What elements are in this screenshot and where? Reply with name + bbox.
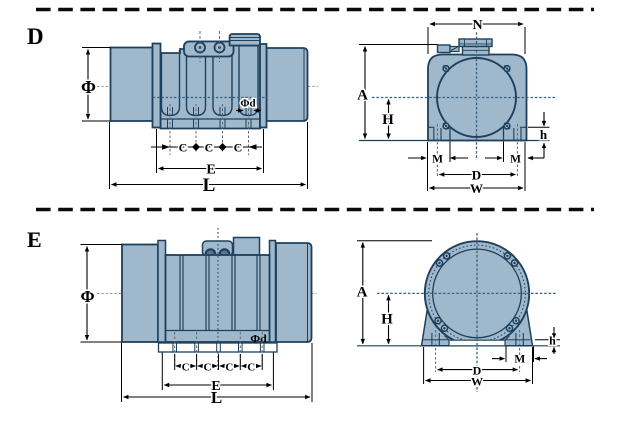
svg-text:A: A (357, 88, 368, 104)
svg-text:H: H (382, 112, 394, 128)
svg-text:C: C (225, 362, 233, 374)
svg-text:H: H (381, 312, 393, 328)
svg-text:h: h (549, 334, 556, 348)
svg-text:N: N (472, 18, 482, 33)
svg-text:E: E (27, 227, 42, 252)
svg-text:M: M (432, 154, 443, 166)
svg-text:C: C (247, 362, 255, 374)
svg-text:M: M (514, 354, 525, 366)
svg-text:C: C (204, 362, 212, 374)
svg-text:h: h (540, 127, 548, 142)
svg-text:Φ: Φ (80, 287, 94, 306)
svg-text:L: L (211, 388, 222, 407)
svg-text:C: C (179, 141, 188, 155)
svg-text:A: A (357, 285, 368, 301)
svg-text:C: C (234, 141, 243, 155)
svg-text:M: M (510, 154, 521, 166)
svg-text:Φd: Φd (240, 98, 255, 110)
svg-text:L: L (203, 175, 216, 196)
svg-text:C: C (205, 141, 214, 155)
svg-text:D: D (27, 24, 44, 49)
svg-text:C: C (182, 362, 190, 374)
svg-text:W: W (470, 181, 483, 196)
svg-text:Φ: Φ (81, 77, 96, 97)
svg-text:W: W (471, 375, 483, 389)
